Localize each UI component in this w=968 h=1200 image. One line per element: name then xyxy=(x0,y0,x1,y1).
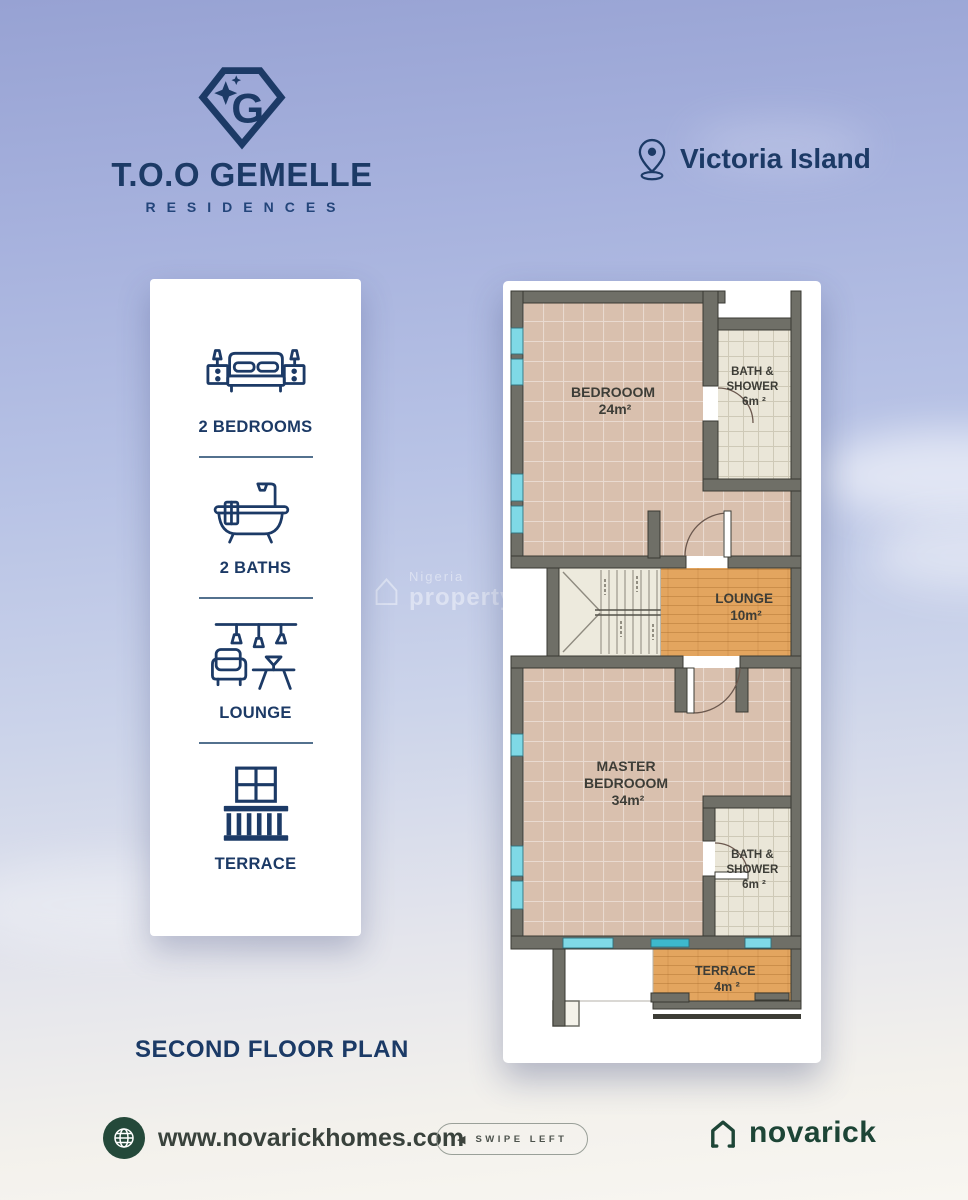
bed-icon xyxy=(204,342,308,408)
terrace-icon xyxy=(210,763,302,845)
amenity-item-lounge: LOUNGE xyxy=(205,618,307,723)
bathtub-icon xyxy=(206,477,306,549)
poster-background: ⌂ Nigeria propertycentre G T.O.O GEMELLE… xyxy=(0,0,968,1200)
cloud xyxy=(820,430,968,520)
location: Victoria Island xyxy=(634,136,871,182)
floor-plan-card: BEDROOOM 24m² BATH & SHOWER 6m ² LOUNGE … xyxy=(503,281,821,1063)
terrace-step-edge xyxy=(653,1014,801,1019)
globe-icon xyxy=(103,1117,145,1159)
amenity-label: 2 BATHS xyxy=(220,559,291,578)
location-label: Victoria Island xyxy=(680,143,871,175)
amenity-label: 2 BEDROOMS xyxy=(199,418,313,437)
amenity-divider xyxy=(199,597,313,599)
floor-plan-svg: BEDROOOM 24m² BATH & SHOWER 6m ² LOUNGE … xyxy=(503,281,821,1063)
house-icon xyxy=(706,1116,740,1150)
gem-logo-icon: G xyxy=(194,62,290,150)
amenity-label: LOUNGE xyxy=(219,704,291,723)
amenity-card: 2 BEDROOMS 2 BATHS xyxy=(150,279,361,936)
staircase xyxy=(559,568,661,656)
novarick-wordmark: novarick xyxy=(749,1116,876,1150)
amenity-item-bedrooms: 2 BEDROOMS xyxy=(199,342,313,437)
lounge-icon xyxy=(205,618,307,694)
floor-plan-title: SECOND FLOOR PLAN xyxy=(135,1036,409,1064)
amenity-divider xyxy=(199,456,313,458)
room-lounge xyxy=(661,568,791,656)
novarick-logo: novarick xyxy=(706,1116,876,1150)
swipe-left-button[interactable]: ◀ SWIPE LEFT xyxy=(436,1123,588,1155)
amenity-divider xyxy=(199,742,313,744)
bottom-left-landing xyxy=(553,949,653,1026)
website-link[interactable]: www.novarickhomes.com xyxy=(103,1117,464,1159)
website-label: www.novarickhomes.com xyxy=(158,1124,464,1153)
amenity-item-baths: 2 BATHS xyxy=(206,477,306,578)
swipe-left-arrow-icon: ◀ xyxy=(457,1133,465,1146)
svg-text:G: G xyxy=(231,84,264,131)
brand-logo: G T.O.O GEMELLE RESIDENCES xyxy=(108,62,376,215)
amenity-label: TERRACE xyxy=(215,855,297,874)
amenity-item-terrace: TERRACE xyxy=(210,763,302,874)
cloud xyxy=(870,520,968,590)
location-pin-icon xyxy=(634,136,670,182)
watermark-house-icon: ⌂ xyxy=(372,566,401,614)
swipe-left-label: SWIPE LEFT xyxy=(475,1134,567,1145)
brand-subtitle: RESIDENCES xyxy=(108,199,376,215)
brand-name: T.O.O GEMELLE xyxy=(108,156,376,194)
